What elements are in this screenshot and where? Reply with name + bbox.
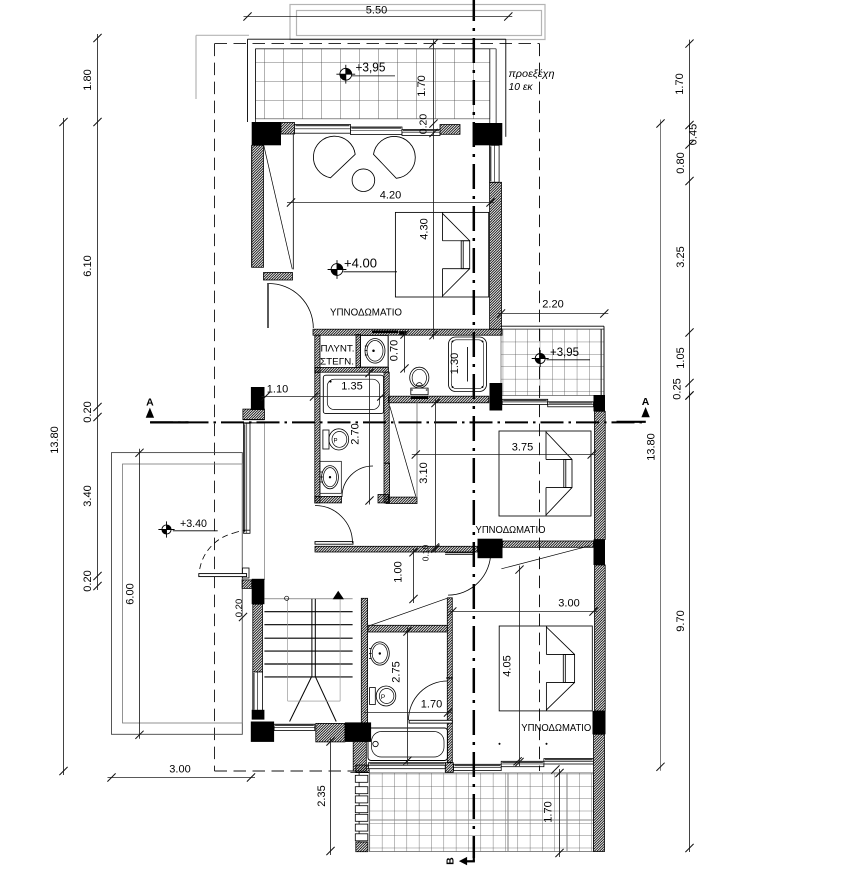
svg-text:1.00: 1.00 <box>393 561 405 582</box>
svg-text:+4.00: +4.00 <box>344 257 377 271</box>
svg-text:0.70: 0.70 <box>389 340 401 361</box>
svg-text:P: P <box>381 694 385 701</box>
svg-text:+3.40: +3.40 <box>180 518 207 530</box>
svg-text:1.70: 1.70 <box>543 801 555 822</box>
svg-text:A: A <box>146 397 154 409</box>
svg-text:2.70: 2.70 <box>350 423 362 444</box>
svg-text:3.00: 3.00 <box>169 764 190 776</box>
svg-text:13.80: 13.80 <box>646 433 658 461</box>
svg-text:6.00: 6.00 <box>125 583 137 604</box>
svg-text:+3,95: +3,95 <box>550 345 579 359</box>
svg-text:1.80: 1.80 <box>82 69 94 90</box>
svg-text:ΠΛΥΝΤ.: ΠΛΥΝΤ. <box>321 344 355 355</box>
svg-text:4.30: 4.30 <box>419 218 431 239</box>
svg-text:3.00: 3.00 <box>558 598 579 610</box>
svg-text:0.25: 0.25 <box>672 378 684 399</box>
svg-text:0.20: 0.20 <box>418 114 430 135</box>
svg-text:1.70: 1.70 <box>674 73 686 94</box>
svg-text:2.20: 2.20 <box>542 299 563 311</box>
svg-text:4.20: 4.20 <box>380 190 401 202</box>
svg-text:0.20: 0.20 <box>234 599 245 618</box>
svg-text:B: B <box>445 857 457 865</box>
svg-text:6.10: 6.10 <box>82 255 94 276</box>
svg-text:ΥΠΝΟΔΩΜΑΤΙΟ: ΥΠΝΟΔΩΜΑΤΙΟ <box>330 307 402 319</box>
svg-text:1.10: 1.10 <box>267 384 288 396</box>
svg-text:4.05: 4.05 <box>502 655 514 676</box>
svg-text:1.30: 1.30 <box>449 353 461 374</box>
svg-text:3.75: 3.75 <box>512 442 533 454</box>
svg-text:2.35: 2.35 <box>316 785 328 806</box>
svg-text:10 εκ: 10 εκ <box>509 82 534 93</box>
svg-text:A: A <box>642 396 650 408</box>
svg-text:0.80: 0.80 <box>675 152 687 173</box>
svg-text:0.20: 0.20 <box>82 401 94 422</box>
svg-text:0.10: 0.10 <box>421 544 431 561</box>
svg-text:3.40: 3.40 <box>82 485 94 506</box>
svg-text:1.35: 1.35 <box>341 381 362 393</box>
svg-text:προεξέχη: προεξέχη <box>509 68 555 80</box>
svg-text:ΥΠΝΟΔΩΜΑΤΙΟ: ΥΠΝΟΔΩΜΑΤΙΟ <box>476 524 546 536</box>
svg-text:P: P <box>333 439 337 445</box>
svg-text:+3,95: +3,95 <box>356 61 386 75</box>
svg-text:3.10: 3.10 <box>418 462 430 483</box>
svg-text:9.70: 9.70 <box>675 610 687 631</box>
svg-text:1.05: 1.05 <box>675 347 687 368</box>
svg-text:0.20: 0.20 <box>82 570 94 591</box>
svg-text:0.45: 0.45 <box>688 124 700 145</box>
svg-text:1.70: 1.70 <box>416 75 428 96</box>
svg-text:ΣΤΕΓΝ.: ΣΤΕΓΝ. <box>320 357 354 368</box>
svg-text:5.50: 5.50 <box>366 5 387 17</box>
svg-text:1.70: 1.70 <box>421 699 442 711</box>
svg-text:3.25: 3.25 <box>675 246 687 267</box>
svg-text:13.80: 13.80 <box>49 426 61 454</box>
svg-text:ΥΠΝΟΔΩΜΑΤΙΟ: ΥΠΝΟΔΩΜΑΤΙΟ <box>521 722 591 734</box>
svg-text:2.75: 2.75 <box>391 661 403 682</box>
